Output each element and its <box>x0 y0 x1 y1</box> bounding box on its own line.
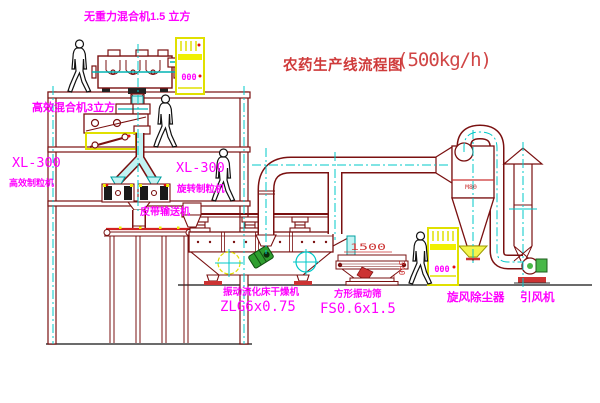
control-cabinet-top: 000 <box>176 38 204 94</box>
cabinet-top-mark: 000 <box>181 73 196 83</box>
label-granulator-mid-model: XL-300 <box>176 162 225 176</box>
cabinet-right-mark: 000 <box>434 265 449 275</box>
label-cyclone: 旋风除尘器 <box>447 293 505 305</box>
label-granulator-left-name: 高效制粒机 <box>9 179 54 188</box>
page-title-capacity: (500kg/h) <box>397 49 491 71</box>
label-granulator-left-model: XL-300 <box>12 157 61 171</box>
label-dryer-name: 振动流化床干燥机 <box>223 288 299 298</box>
label-dryer-model: ZLG6x0.75 <box>220 300 296 314</box>
label-high-eff-mixer: 高效混合机3立方 <box>32 103 115 114</box>
label-fan: 引风机 <box>520 293 555 305</box>
label-screen-model: FS0.6x1.5 <box>320 302 396 316</box>
worker-figure-top <box>68 40 91 92</box>
screen-height-dimension: 340 <box>397 261 406 276</box>
screen-width-dimension: 1500 <box>350 243 386 253</box>
page-title: 农药生产线流程图 <box>283 54 403 75</box>
label-granulator-mid-name: 旋转制粒机 <box>177 185 225 195</box>
label-belt-conveyor: 皮带输送机 <box>140 208 190 218</box>
worker-figure-floor2 <box>154 95 177 147</box>
label-gravity-mixer: 无重力混合机1.5 立方 <box>84 12 190 23</box>
label-screen-name: 方形振动筛 <box>334 290 382 300</box>
control-cabinet-right: 000 <box>428 228 458 285</box>
ground-lines <box>46 285 592 344</box>
diagram-page: 000 000 1500 340 M80 农药生产线流程图 (500kg/h) … <box>0 0 600 403</box>
cyclone-mark: M80 <box>465 183 477 191</box>
